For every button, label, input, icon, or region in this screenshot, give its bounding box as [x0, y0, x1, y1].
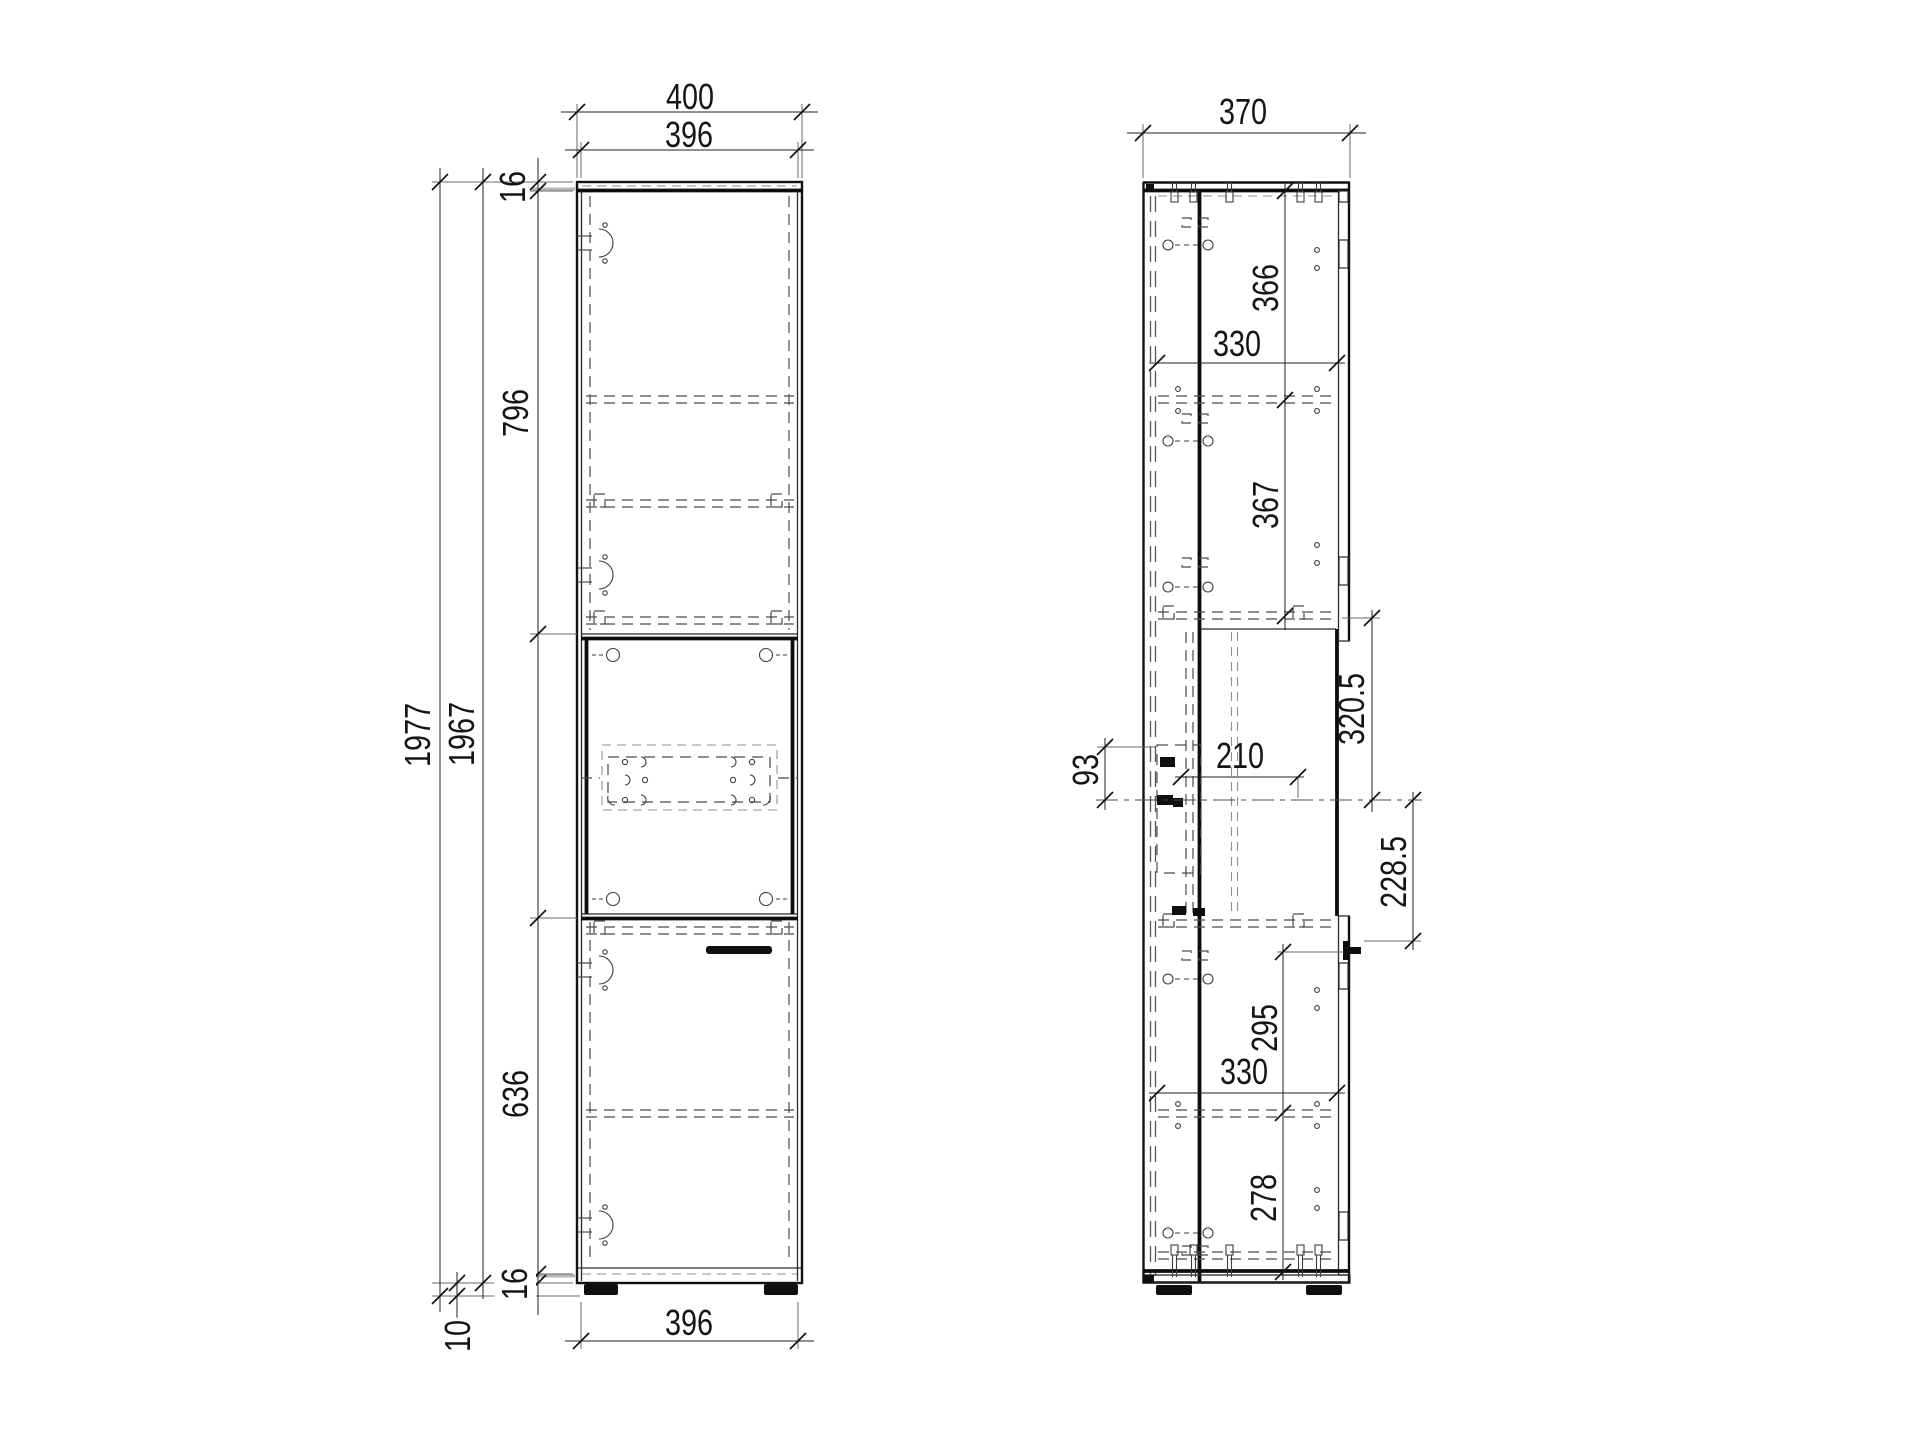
dim-side-lower-compartment: 278 — [1243, 1174, 1285, 1222]
dim-side-second-compartment: 367 — [1245, 481, 1287, 529]
dim-side-niche-lower: 228.5 — [1373, 836, 1415, 908]
dim-front-top-panel: 16 — [492, 171, 534, 203]
front-view-linework — [577, 182, 802, 1295]
front-left-foot — [584, 1284, 618, 1295]
dim-side-overall-depth: 370 — [1219, 91, 1267, 133]
dim-side-niche-upper: 320.5 — [1331, 673, 1373, 745]
dim-front-door-width-top: 396 — [665, 114, 713, 156]
dim-side-top-shelf-depth: 330 — [1213, 323, 1261, 365]
hinge-block — [1339, 963, 1348, 989]
side-left-foot — [1156, 1285, 1192, 1295]
hinge-block — [1339, 1212, 1348, 1240]
drawing-linework — [0, 0, 1931, 1448]
dim-side-bracket-depth: 210 — [1216, 735, 1264, 777]
side-right-foot — [1306, 1285, 1342, 1295]
cabinet-technical-drawing: 400 396 16 796 1977 1967 636 16 10 396 3… — [0, 0, 1931, 1448]
dim-side-bracket-height: 93 — [1065, 754, 1107, 786]
hinge-block — [1339, 557, 1348, 585]
dim-front-plinth: 10 — [437, 1318, 479, 1355]
dim-front-lower-door: 636 — [495, 1070, 537, 1118]
section-marker-top — [1146, 184, 1154, 191]
front-right-foot — [764, 1284, 798, 1295]
front-door-handle — [706, 946, 772, 954]
dim-front-overall-width: 400 — [666, 76, 714, 118]
dim-front-bottom-panel: 16 — [494, 1266, 536, 1303]
dim-side-lower-upper-compartment: 295 — [1244, 1004, 1286, 1052]
dim-front-carcass-height: 1967 — [441, 702, 483, 766]
hinge-block — [1339, 240, 1348, 268]
dim-front-overall-height: 1977 — [397, 703, 439, 767]
dim-front-upper-door: 796 — [495, 389, 537, 437]
dim-side-lower-shelf-depth: 330 — [1220, 1051, 1268, 1093]
front-mounting-plate — [581, 745, 798, 810]
dim-front-door-width-bottom: 396 — [665, 1302, 713, 1344]
side-door-handle — [1343, 941, 1350, 960]
section-marker-bottom — [1143, 1275, 1154, 1283]
dim-side-top-compartment: 366 — [1245, 264, 1287, 312]
front-view-dimensions — [432, 104, 818, 1350]
